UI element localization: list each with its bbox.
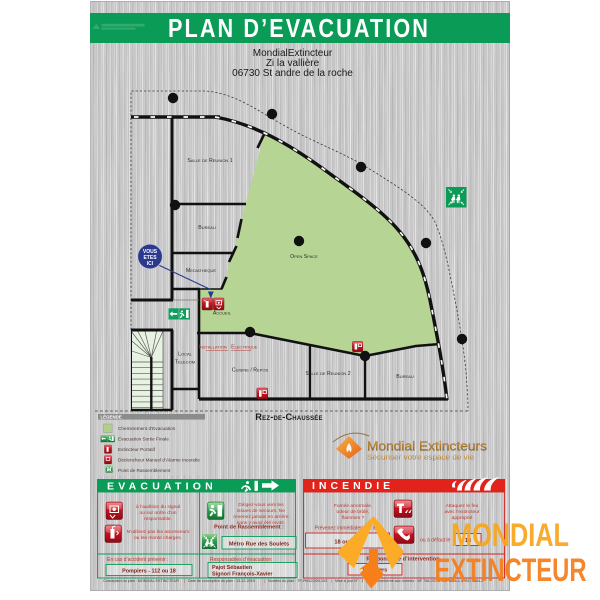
svg-text:Point de Rassemblement: Point de Rassemblement [118,468,171,473]
svg-text:|: | [184,579,185,583]
svg-text:Telecom: Telecom [175,360,195,366]
svg-text:Salle de Reunion 2: Salle de Reunion 2 [305,371,350,377]
svg-text:Numéro du plan : TF-PM122/00-1: Numéro du plan : TF-PM122/00-103 [268,579,327,583]
svg-text:Dirigez-vous vers les: Dirigez-vous vers les [238,502,284,508]
svg-text:EVACUATION: EVACUATION [107,481,217,493]
svg-text:Date de conception du plan : 1: Date de conception du plan : 13-12-2019 [188,579,255,583]
svg-text:Pompiers - 112 ou 18: Pompiers - 112 ou 18 [122,569,176,575]
svg-text:ou à défaut le: ou à défaut le [420,538,451,544]
svg-text:Conception du plan : MONDIAL E: Conception du plan : MONDIAL EXTINCTEUR [103,579,179,583]
svg-text:Mise à jour N° : 1: Mise à jour N° : 1 [335,579,363,583]
svg-text:Cuisine / Repos: Cuisine / Repos [232,368,269,374]
svg-text:N’utilisez pas les ascenseurs: N’utilisez pas les ascenseurs [127,529,190,535]
svg-text:Attaquez le feu: Attaquez le feu [446,503,479,509]
svg-text:|: | [264,579,265,583]
svg-text:issues de secours. Ne: issues de secours. Ne [237,508,285,514]
svg-text:ICI: ICI [147,261,154,267]
svg-text:responsable.: responsable. [144,516,172,522]
svg-text:06730 St andre de la roche: 06730 St andre de la roche [232,68,353,79]
svg-text:ou sur ordre d’un: ou sur ordre d’un [140,510,177,516]
svg-text:Signori François-Xavier: Signori François-Xavier [212,572,273,578]
svg-text:Pajot Sébastien: Pajot Sébastien [212,565,252,571]
svg-text:Accueil: Accueil [213,311,232,317]
svg-text:En cas d’accident prévenir :: En cas d’accident prévenir : [107,557,168,563]
svg-text:Bureau: Bureau [396,374,414,380]
svg-text:ou les monte charges.: ou les monte charges. [134,535,182,541]
svg-text:|: | [331,579,332,583]
svg-text:à l’audition du signal: à l’audition du signal [136,504,180,510]
svg-text:flammes ?: flammes ? [342,515,365,521]
svg-text:Déclencheur Manuel d’Alarme In: Déclencheur Manuel d’Alarme Incendie [118,458,200,463]
svg-text:Bureau: Bureau [198,225,216,231]
svg-text:LÉGENDE: LÉGENDE [101,415,122,420]
svg-text:Rez-de-Chaussée: Rez-de-Chaussée [255,412,322,422]
svg-text:Salle de Reunion 1: Salle de Reunion 1 [187,158,232,164]
svg-text:Fumée anormale,: Fumée anormale, [334,503,372,509]
svg-text:Open Space: Open Space [290,254,318,260]
svg-text:revenez jamais en arrière: revenez jamais en arrière [233,514,288,520]
svg-text:Cheminement d’Evacuation: Cheminement d’Evacuation [118,426,176,431]
svg-text:Sécuriser votre espace de vie: Sécuriser votre espace de vie [367,453,474,462]
svg-text:MONDIAL: MONDIAL [451,517,569,553]
svg-text:Mediatheque: Mediatheque [186,268,216,274]
svg-text:EXTINCTEUR: EXTINCTEUR [435,552,587,588]
svg-text:Evacuation Sortie Finale: Evacuation Sortie Finale [118,437,169,442]
svg-text:Installation Electrique: Installation Electrique [199,345,258,351]
svg-text:avec l’extincteur: avec l’extincteur [444,509,479,515]
svg-text:PLAN D’EVACUATION: PLAN D’EVACUATION [168,13,430,43]
svg-text:Local: Local [178,352,193,358]
svg-text:INCENDIE: INCENDIE [312,480,394,492]
svg-text:Point de Rassemblement :: Point de Rassemblement : [214,525,284,531]
svg-text:Métro Rue des Soulets: Métro Rue des Soulets [229,542,289,548]
svg-text:Mondial Extincteurs: Mondial Extincteurs [367,439,488,454]
svg-text:Extincteur Portatif: Extincteur Portatif [118,447,156,452]
svg-text:odeur de brûlé,: odeur de brûlé, [337,509,370,515]
